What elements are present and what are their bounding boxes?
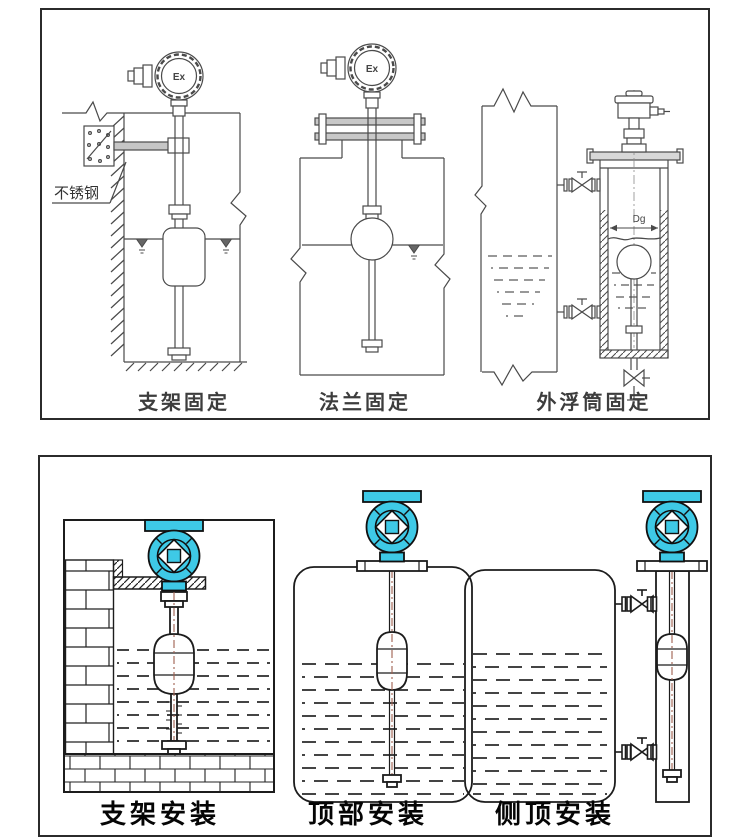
ex-transmitter-icon — [128, 52, 203, 116]
bracket-installation-diagram: 支架安装 — [64, 520, 274, 829]
float-body — [163, 228, 205, 286]
bracket-fixing-diagram: Ex 不锈钢 支架固定 — [52, 52, 247, 414]
caption-side-top-installation: 侧顶安装 — [495, 799, 615, 829]
pipe-coupling — [363, 206, 381, 214]
fixing-methods-figure: Ex 不锈钢 支架固定 — [42, 10, 708, 418]
brick-floor — [64, 754, 274, 792]
rod-coupling — [626, 326, 642, 333]
level-symbol-icon — [409, 245, 420, 259]
level-symbol-icon — [221, 239, 232, 253]
brick-wall — [66, 560, 114, 754]
tank-right-wall — [231, 113, 246, 362]
mounting-flange — [315, 114, 425, 144]
float-level-transmitter-installation-figure: { "colors": { "accent": "#3ec9e6", "cent… — [0, 0, 750, 840]
ex-marking: Ex — [173, 72, 186, 83]
storage-tank — [465, 570, 615, 802]
ex-transmitter-icon — [321, 44, 396, 108]
smart-transmitter-icon — [643, 491, 701, 562]
wall-mount-plate — [84, 126, 114, 166]
pipe-coupling — [169, 205, 190, 214]
side-top-installation-diagram: 侧顶安装 — [465, 491, 707, 829]
rod-end-stop — [162, 741, 186, 749]
rod-end-stop — [168, 348, 190, 355]
rod-end-stop — [362, 340, 382, 347]
wall-corner-hatch — [114, 560, 123, 577]
level-symbol-icon — [137, 239, 148, 253]
installation-methods-panel: 支架安装 顶部安装 — [38, 455, 712, 837]
external-chamber-fixing-diagram: Dg 外浮筒固定 — [475, 89, 683, 414]
rod-end-stop — [383, 775, 401, 782]
mounting-flange — [637, 561, 707, 571]
rod-end-stop — [663, 770, 681, 777]
top-installation-diagram: 顶部安装 — [294, 491, 472, 829]
ground-hatching — [126, 363, 242, 371]
ex-marking: Ex — [366, 64, 379, 75]
fixing-methods-panel: Ex 不锈钢 支架固定 — [40, 8, 710, 420]
tank-liquid-dashes — [473, 654, 607, 794]
ceiling-line — [62, 102, 240, 121]
float-ball — [351, 218, 393, 260]
diameter-label: Dg — [633, 214, 646, 225]
float-ball — [617, 245, 651, 279]
flange-fixing-diagram: Ex 法兰固定 — [291, 44, 450, 414]
material-label: 不锈钢 — [54, 185, 99, 202]
lower-connection-valve-icon — [615, 738, 657, 760]
pipe-clamp — [168, 138, 189, 153]
caption-flange-fixing: 法兰固定 — [319, 390, 411, 414]
support-shelf — [114, 577, 206, 589]
inlet-valve-icon — [557, 172, 600, 192]
process-vessel — [475, 89, 557, 385]
caption-bracket-fixing: 支架固定 — [138, 390, 230, 414]
caption-top-installation: 顶部安装 — [308, 799, 428, 829]
installation-methods-figure: 支架安装 顶部安装 — [40, 457, 710, 835]
caption-bracket-installation: 支架安装 — [100, 799, 220, 829]
smart-transmitter-icon — [363, 491, 421, 562]
bracket-arm — [114, 142, 169, 150]
terminal-head-transmitter-icon — [615, 91, 670, 152]
upper-connection-valve-icon — [615, 590, 657, 612]
caption-external-chamber-fixing: 外浮筒固定 — [537, 390, 652, 414]
outlet-valve-icon — [557, 299, 600, 319]
vessel-liquid-dashes — [488, 256, 552, 316]
mounting-flange — [357, 561, 427, 571]
